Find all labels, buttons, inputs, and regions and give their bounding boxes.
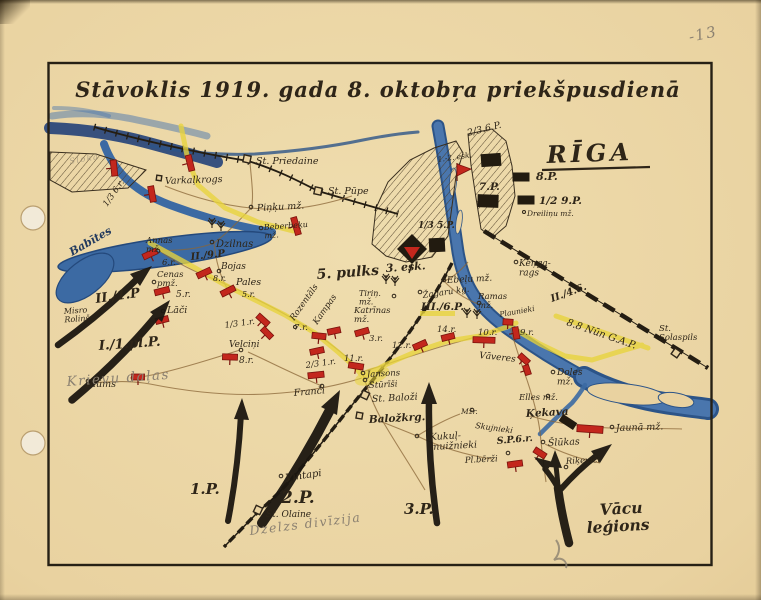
label-mzr: Mžr. (460, 407, 478, 416)
label-st-pupe: St. Pūpe (328, 186, 369, 197)
hole-punches (21, 206, 45, 455)
label-pales: Pales (235, 277, 261, 288)
label-nun-gap: 8.8 Nūn G.A.P. (565, 317, 638, 351)
label-pinku: Piņķu mž. (256, 201, 305, 215)
label-franci: Franči (292, 385, 325, 399)
map-canvas: Stāvoklis 1919. gada 8. oktobŗa priekšpu… (0, 0, 761, 600)
label-unit-II-9P: II./9.P (189, 248, 226, 263)
label-2P: 2.P. (280, 488, 315, 508)
label-unit-1-3-1r: 1/3 1.r. (224, 317, 255, 331)
label-unit-6r: 6.r. (162, 258, 176, 268)
arrow-1P (228, 414, 241, 521)
dole-island (586, 379, 668, 409)
label-kenga-rags: Keņga-rags (518, 259, 551, 278)
label-unit-5r-b: 5.r. (242, 290, 255, 299)
hole-punch-top (21, 206, 45, 230)
built-up-areas (50, 129, 515, 262)
label-unit-8r: 8.r. (239, 356, 254, 366)
label-unit-7r: 7.r. (294, 323, 308, 333)
label-unit-10r: 10.r. (478, 328, 497, 338)
label-unit-half-9P: 1/2 9.P. (539, 195, 582, 207)
label-st-salaspils: St.Solaspils (659, 324, 698, 343)
label-ebelu: Ebeļu mž. (446, 273, 493, 286)
label-5-pulks: 5. pulks (316, 263, 379, 283)
label-beberbeku: Beberbeķumž. (263, 220, 309, 241)
map-title: Stāvoklis 1919. gada 8. oktobŗa priekšpu… (75, 77, 681, 102)
page-number: -13 (687, 22, 719, 46)
red-pennant-riga (457, 163, 471, 181)
label-rikevici: Riķeviči (565, 454, 601, 467)
label-varkalkrogs: Varkaļkrogs (165, 174, 223, 187)
label-balozkrogs: Baložkrg. (368, 411, 426, 426)
label-unit-1-3-5P: 1/3 5.P. (418, 221, 455, 231)
label-slukas: Šlūkas (548, 435, 581, 449)
label-unit-III-6P: III./6.P. (420, 301, 464, 313)
label-3-esk: 3. esk. (385, 259, 426, 275)
label-unit-I-1plP: I./1.pl.P. (97, 334, 161, 354)
label-tirin: Tiriņ.mž. (359, 289, 381, 306)
label-zagaru: Žagaru kg. (421, 283, 470, 302)
label-legions: leģions (586, 515, 650, 537)
label-ramas: Ramasmž. (477, 292, 508, 311)
pencil-note-krievu-dalas: Krievu daļas (65, 367, 170, 390)
label-unit-9r: 9.r. (520, 328, 534, 338)
label-3P: 3.P. (404, 500, 434, 518)
label-unit-SP6r: S.P.6.r. (496, 433, 533, 447)
label-unit-11r: 11.r. (344, 354, 363, 364)
label-unit-2-3-1r: 2/3 1.r. (304, 357, 336, 371)
label-velcini: Velciņi (229, 340, 260, 350)
label-1P: 1.P. (190, 480, 220, 498)
label-plberzi: Pl.bērži (464, 453, 499, 466)
label-elles: Elles mž. (518, 392, 558, 403)
label-misro-rolins: MisroRoliņš (63, 305, 91, 324)
hole-punch-bottom (21, 431, 45, 455)
label-unit-8r-b: 8.r. (213, 274, 226, 283)
label-jauna: Jaunā mž. (614, 421, 664, 434)
label-skujnieki: Skujnieki (475, 421, 514, 435)
pencil-flourish (554, 540, 566, 568)
label-katrinas: Katrīnasmž. (353, 306, 391, 325)
label-unit-8P: 8.P. (536, 170, 558, 183)
label-plaunieki: Plaunieki (498, 304, 536, 319)
label-laci: Lāči (166, 305, 187, 316)
label-vaveres: Vāveres (479, 351, 517, 365)
label-bojas: Bojas (220, 262, 246, 272)
label-unit-14r: 14.r. (437, 325, 456, 335)
label-kekava: Ķekava (525, 406, 570, 420)
label-unit-3r: 3.r. (369, 334, 383, 344)
label-st-balozi: St. Baloži (372, 392, 418, 405)
scanned-map-page: Stāvoklis 1919. gada 8. oktobŗa priekšpu… (0, 0, 761, 600)
label-sturisi: Stūrīši (369, 379, 398, 391)
label-kampas: Kampas (311, 292, 340, 327)
label-cenas: Cenaspmž. (157, 270, 184, 289)
label-unit-7P: 7.P. (479, 181, 500, 193)
label-unit-II-1P: II./1.P (93, 286, 142, 307)
label-unit-12r: 12.r. (392, 341, 411, 351)
label-unit-II-4-6: II./4.6. (548, 282, 588, 305)
label-dreilinu: Dreiliņu mž. (526, 209, 574, 218)
label-jansons: Jansons (365, 368, 401, 380)
label-unit-5r: 5.r. (176, 290, 191, 300)
label-kukulmuiznieki: Kukuļ-muižnieki (429, 430, 478, 453)
label-riga: RĪGA (545, 137, 633, 169)
label-st-priedaine: St. Priedaine (256, 156, 319, 167)
